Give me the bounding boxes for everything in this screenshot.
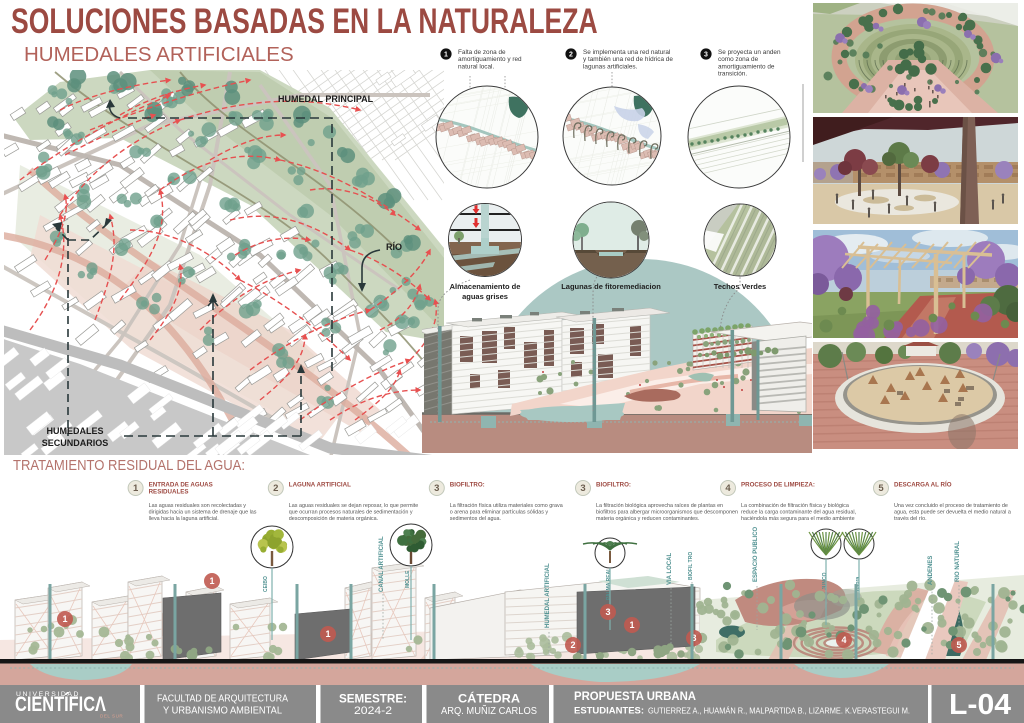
svg-text:1: 1 — [62, 614, 67, 624]
svg-text:ENTRADA DE AGUAS: ENTRADA DE AGUAS — [149, 482, 213, 489]
svg-text:ESPACIO PUBLICO: ESPACIO PUBLICO — [753, 526, 759, 582]
svg-text:que ocurran procesos naturales: que ocurran procesos naturales de sedime… — [289, 509, 413, 515]
svg-text:ESTUDIANTES:: ESTUDIANTES: — [574, 706, 644, 717]
svg-text:L-04: L-04 — [949, 689, 1011, 721]
svg-text:RÍO: RÍO — [386, 242, 402, 252]
svg-text:PROCESO DE LIMPIEZA:: PROCESO DE LIMPIEZA: — [741, 482, 815, 489]
svg-text:lleva hacia la laguna artifici: lleva hacia la laguna artificial. — [149, 516, 219, 522]
svg-text:Una vez concluido el proceso d: Una vez concluido el proceso de tratamie… — [894, 503, 1008, 509]
svg-text:3: 3 — [605, 607, 610, 617]
svg-text:VIA LOCAL: VIA LOCAL — [667, 553, 673, 585]
svg-text:descomposición de materia orgá: descomposición de materia orgánica. — [289, 516, 378, 522]
svg-text:amortiguamiento de: amortiguamiento de — [718, 63, 775, 70]
svg-text:Techos Verdes: Techos Verdes — [714, 282, 766, 291]
svg-text:1: 1 — [209, 576, 214, 586]
svg-text:Falta de zona de: Falta de zona de — [458, 49, 506, 56]
svg-text:3: 3 — [580, 483, 585, 494]
svg-text:amortiguamiento y red: amortiguamiento y red — [458, 56, 522, 63]
svg-text:HUMEDAL PRINCIPAL: HUMEDAL PRINCIPAL — [278, 94, 374, 104]
svg-text:ARQ. MUÑIZ CARLOS: ARQ. MUÑIZ CARLOS — [441, 704, 537, 717]
svg-text:CANAL ARTIFICIAL: CANAL ARTIFICIAL — [379, 536, 385, 592]
svg-text:sedimentos del agua.: sedimentos del agua. — [450, 516, 501, 522]
svg-text:HUMEDAL ARTIFICIAL: HUMEDAL ARTIFICIAL — [545, 563, 551, 628]
svg-text:como zona de: como zona de — [718, 56, 759, 63]
svg-text:o arena para eliminar partícul: o arena para eliminar partículas sólidas… — [450, 509, 549, 515]
svg-text:FACULTAD DE ARQUITECTURA: FACULTAD DE ARQUITECTURA — [157, 693, 288, 705]
svg-text:1: 1 — [325, 629, 330, 639]
svg-text:5: 5 — [878, 483, 884, 494]
svg-text:2024-2: 2024-2 — [354, 705, 392, 717]
svg-text:1: 1 — [629, 620, 634, 630]
svg-text:2: 2 — [273, 483, 278, 494]
svg-text:biofiltros para albergar micro: biofiltros para albergar microorganismos… — [596, 509, 738, 515]
svg-text:1: 1 — [133, 483, 139, 494]
svg-text:través del río.: través del río. — [894, 516, 927, 522]
svg-text:CIENTÍFICΛ: CIENTÍFICΛ — [15, 692, 106, 715]
svg-text:La filtración física utiliza m: La filtración física utiliza materiales … — [450, 503, 563, 509]
svg-text:materia orgánica y reducen con: materia orgánica y reducen contaminantes… — [596, 516, 699, 522]
svg-text:GUTIERREZ A., HUAMÁN R., MALPA: GUTIERREZ A., HUAMÁN R., MALPARTIDA B., … — [648, 706, 910, 716]
svg-text:reduce la carga contaminante d: reduce la carga contaminante del agua re… — [741, 509, 857, 515]
svg-text:LAGUNA ARTIFICIAL: LAGUNA ARTIFICIAL — [289, 482, 351, 489]
svg-text:La combinación de filtración f: La combinación de filtración física y bi… — [741, 503, 849, 509]
svg-text:Y URBANISMO AMBIENTAL: Y URBANISMO AMBIENTAL — [163, 705, 282, 717]
svg-text:transición.: transición. — [718, 71, 747, 78]
svg-text:JUNCO: JUNCO — [822, 572, 828, 590]
svg-text:Se implementa una red natural: Se implementa una red natural — [583, 49, 670, 56]
svg-text:4: 4 — [725, 483, 731, 494]
svg-text:5: 5 — [956, 640, 961, 650]
svg-text:lagunas artificiales.: lagunas artificiales. — [583, 63, 638, 70]
svg-text:haciéndola más segura para el: haciéndola más segura para el medio ambi… — [741, 516, 855, 522]
svg-text:Las aguas residuales son reco: Las aguas residuales son recolectadas y — [149, 503, 247, 509]
svg-text:PROPUESTA URBANA: PROPUESTA URBANA — [574, 689, 696, 703]
svg-text:DESCARGA AL RÍO: DESCARGA AL RÍO — [894, 481, 952, 489]
svg-text:MOLLE: MOLLE — [405, 570, 411, 588]
svg-text:BIOFILTRO:: BIOFILTRO: — [596, 482, 631, 489]
svg-text:Lagunas de fitoremediacion: Lagunas de fitoremediacion — [561, 282, 661, 291]
svg-text:ANDENES: ANDENES — [928, 556, 934, 585]
svg-text:Almacenamiento de: Almacenamiento de — [450, 282, 521, 291]
svg-text:aguas grises: aguas grises — [462, 292, 508, 301]
svg-text:1: 1 — [444, 51, 448, 58]
svg-text:HUMEDALES: HUMEDALES — [46, 426, 103, 436]
svg-text:SECUNDARIOS: SECUNDARIOS — [42, 438, 109, 448]
svg-text:La filtración biológica aprove: La filtración biológica aprovecha raíces… — [596, 503, 723, 509]
svg-text:RIO NATURAL: RIO NATURAL — [955, 541, 961, 582]
svg-text:TRATAMIENTO RESIDUAL DEL AGUA:: TRATAMIENTO RESIDUAL DEL AGUA: — [13, 458, 245, 474]
svg-text:dirigidas hacia un sistema de: dirigidas hacia un sistema de drenaje qu… — [149, 509, 257, 515]
svg-text:PALMA REAL: PALMA REAL — [606, 568, 612, 600]
svg-text:BIOFIL TRO: BIOFIL TRO — [688, 552, 694, 580]
svg-text:SEMESTRE:: SEMESTRE: — [339, 692, 407, 706]
svg-text:4: 4 — [841, 635, 846, 645]
svg-text:natural local.: natural local. — [458, 63, 494, 70]
svg-text:Se proyecta un anden: Se proyecta un anden — [718, 49, 781, 56]
svg-text:Las aguas residuales se dejan: Las aguas residuales se dejan reposar, l… — [289, 503, 418, 509]
svg-text:2: 2 — [569, 51, 573, 58]
svg-text:CÁTEDRA: CÁTEDRA — [458, 691, 520, 706]
svg-text:3: 3 — [434, 483, 439, 494]
svg-text:CEIBO: CEIBO — [263, 576, 269, 592]
svg-text:2: 2 — [570, 640, 575, 650]
svg-text:DEL SUR: DEL SUR — [100, 714, 123, 719]
svg-text:RESIDUALES: RESIDUALES — [149, 489, 189, 496]
svg-text:BIOFILTRO:: BIOFILTRO: — [450, 482, 485, 489]
svg-text:3: 3 — [704, 51, 708, 58]
svg-text:y también una red de hídrica d: y también una red de hídrica de — [583, 56, 673, 63]
svg-text:agua, esta puede ser devuelta: agua, esta puede ser devuelta el medio n… — [894, 509, 1011, 515]
